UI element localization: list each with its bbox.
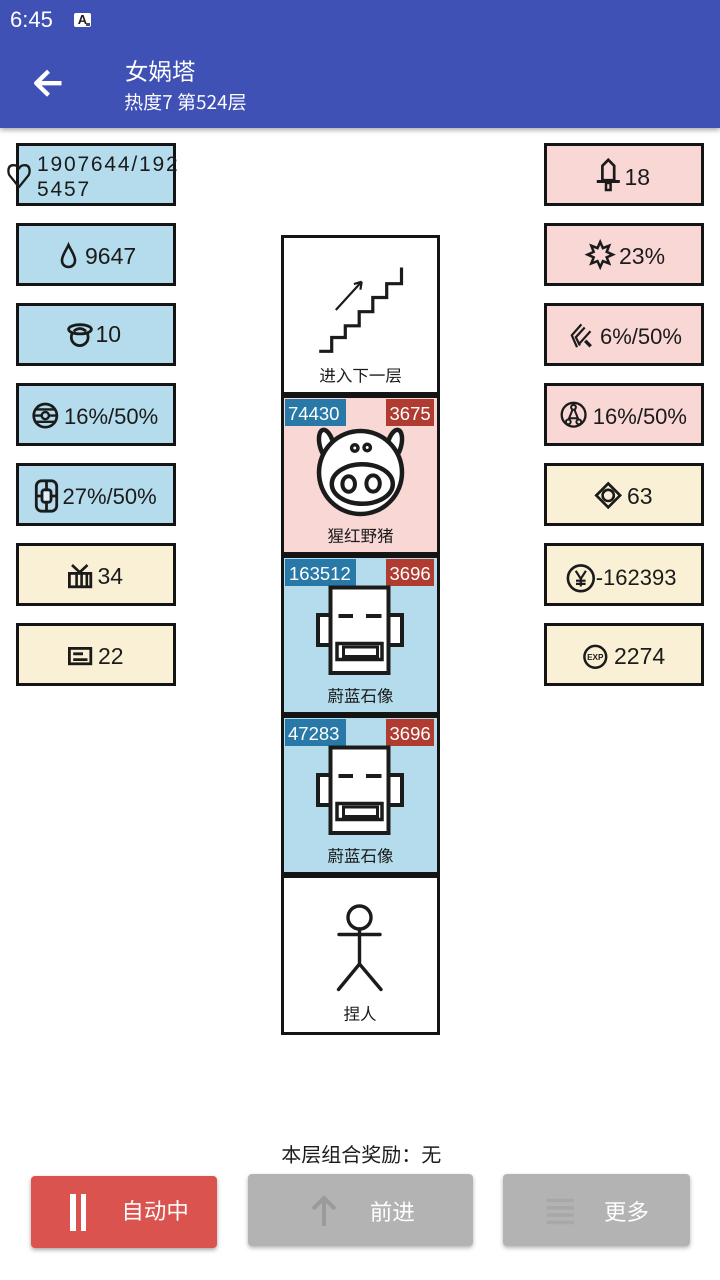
svg-text:EXP: EXP	[587, 653, 604, 662]
